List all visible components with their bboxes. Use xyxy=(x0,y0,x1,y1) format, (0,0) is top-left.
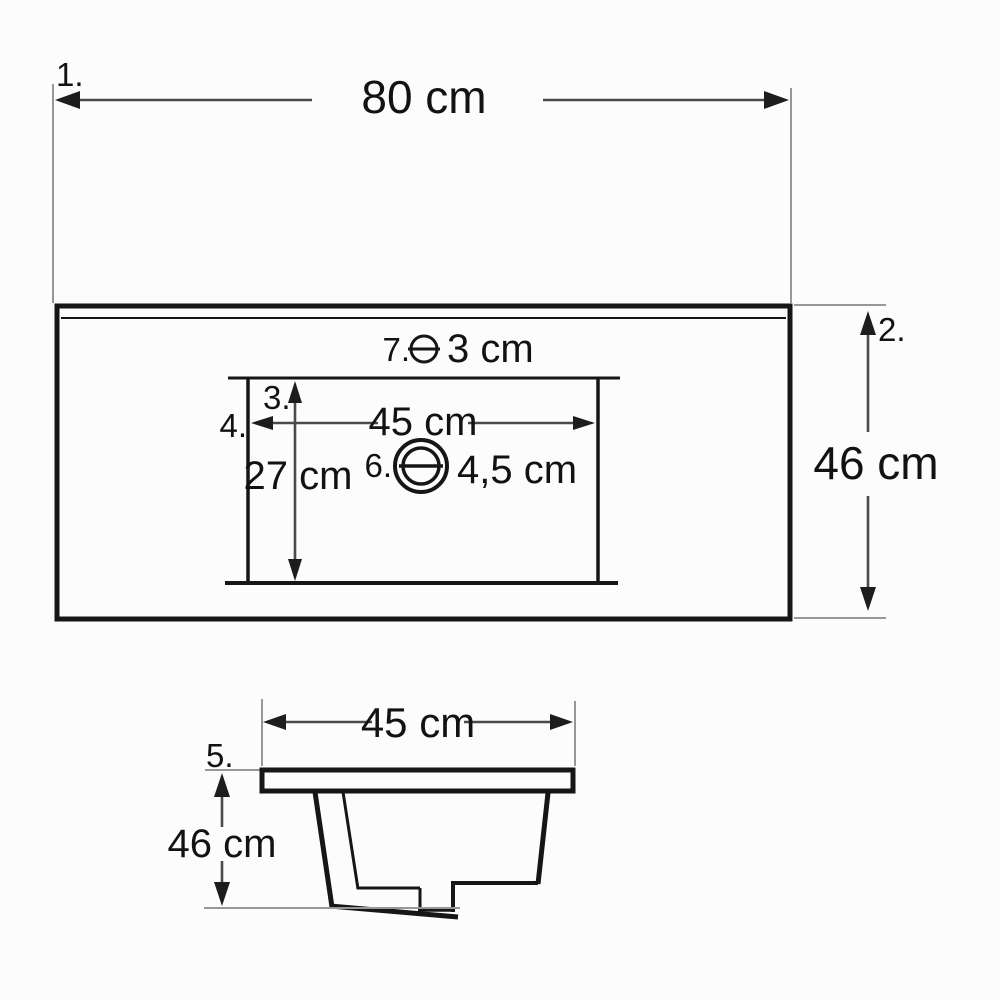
dimension-value: 46 cm xyxy=(168,822,277,866)
dimension-value: 46 cm xyxy=(813,437,938,489)
faucet-hole: 7. 3 cm xyxy=(382,327,533,371)
dimension-value: 45 cm xyxy=(361,699,475,746)
ref-label: 7. xyxy=(382,331,410,368)
arrowhead-down-icon xyxy=(860,587,876,611)
dimension-value: 45 cm xyxy=(369,400,478,444)
dimension-overall-depth: 2. 46 cm xyxy=(794,305,939,618)
ref-label: 6. xyxy=(364,447,392,484)
arrowhead-right-icon xyxy=(764,91,789,109)
arrowhead-right-icon xyxy=(550,714,573,730)
ref-label: 4. xyxy=(219,407,247,444)
bowl-inner-left-wall xyxy=(343,792,358,889)
bowl-outer-left-wall xyxy=(315,792,332,907)
arrowhead-right-icon xyxy=(573,416,595,430)
ref-label: 5. xyxy=(206,737,234,774)
arrowhead-left-icon xyxy=(55,91,80,109)
rim-slab xyxy=(262,770,573,791)
top-view-outline xyxy=(57,306,790,619)
washbasin-drawing: 1. 80 cm 7. 3 cm 4. 45 cm 3. 27 cm xyxy=(0,0,1000,1000)
dimension-overall-width: 1. 80 cm xyxy=(53,56,791,303)
arrowhead-up-icon xyxy=(214,773,230,797)
dimension-basin-depth: 3. 27 cm xyxy=(244,379,353,581)
technical-drawing-page: 1. 80 cm 7. 3 cm 4. 45 cm 3. 27 cm xyxy=(0,0,1000,1000)
dimension-value: 80 cm xyxy=(361,71,486,123)
dimension-value: 27 cm xyxy=(244,454,353,498)
ref-label: 1. xyxy=(56,56,84,93)
drain-hole: 6. 4,5 cm xyxy=(364,440,577,492)
arrowhead-left-icon xyxy=(263,714,286,730)
ref-label: 2. xyxy=(878,311,906,348)
arrowhead-up-icon xyxy=(860,311,876,335)
ref-label: 3. xyxy=(263,379,291,416)
basin-outer-rect xyxy=(57,306,790,619)
section-view-outline xyxy=(262,770,573,917)
dimension-section-width: 45 cm 5. xyxy=(205,699,575,774)
arrowhead-left-icon xyxy=(251,416,273,430)
bowl-right-wall xyxy=(538,793,548,884)
dimension-value: 3 cm xyxy=(447,327,534,371)
dimension-value: 4,5 cm xyxy=(457,448,577,492)
arrowhead-down-icon xyxy=(214,882,230,906)
arrowhead-down-icon xyxy=(288,559,302,581)
